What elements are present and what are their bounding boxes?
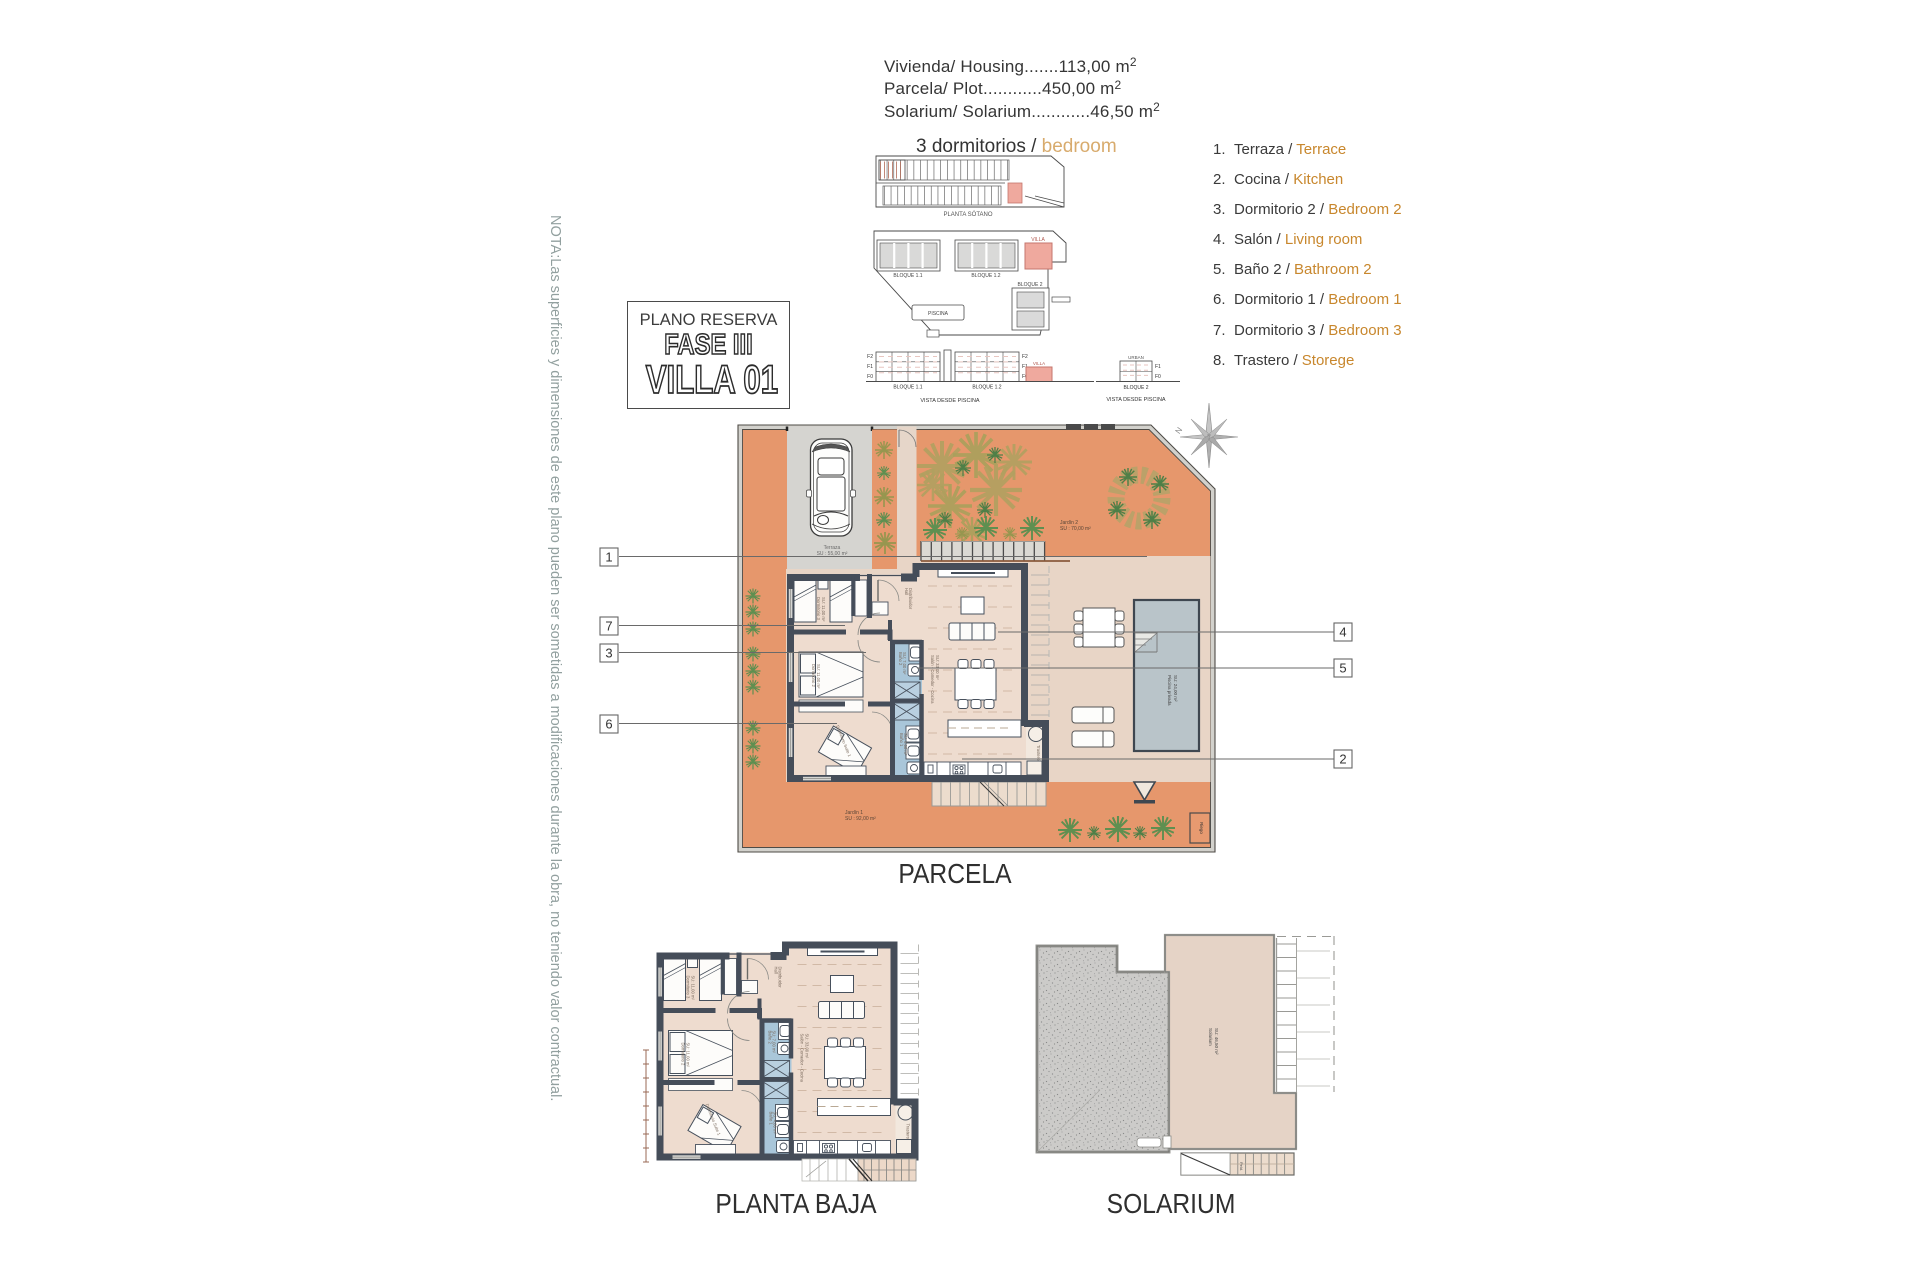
svg-text:PISCINA: PISCINA (928, 311, 949, 317)
svg-text:SU: 11,00 m²: SU: 11,00 m² (821, 597, 826, 622)
svg-text:Dormitorio 2: Dormitorio 2 (811, 664, 816, 687)
svg-text:BLOQUE 2: BLOQUE 2 (1017, 282, 1042, 288)
svg-text:5: 5 (1339, 661, 1346, 676)
svg-text:SU : 92,00 m²: SU : 92,00 m² (845, 816, 876, 822)
svg-text:SU: 24,00 m²: SU: 24,00 m² (1173, 675, 1178, 702)
svg-text:BLOQUE 1.2: BLOQUE 1.2 (971, 273, 1000, 279)
svg-text:Solarium: Solarium (1208, 1028, 1213, 1046)
svg-text:Piscina privada: Piscina privada (1167, 675, 1172, 706)
svg-text:SU: 7,00 m²: SU: 7,00 m² (902, 652, 907, 675)
svg-text:F0: F0 (1155, 374, 1161, 380)
svg-text:F1: F1 (867, 364, 873, 370)
svg-text:VILLA: VILLA (1031, 237, 1045, 243)
svg-text:SU : 70,00 m²: SU : 70,00 m² (1060, 526, 1091, 532)
svg-text:F2: F2 (867, 354, 873, 360)
svg-text:F0: F0 (867, 374, 873, 380)
svg-text:F1: F1 (1155, 364, 1161, 370)
svg-text:BLOQUE 1.1: BLOQUE 1.1 (893, 385, 922, 391)
svg-text:6: 6 (605, 717, 612, 732)
svg-text:3: 3 (605, 646, 612, 661)
svg-text:VILLA: VILLA (1033, 361, 1045, 366)
svg-text:BLOQUE 1.1: BLOQUE 1.1 (893, 273, 922, 279)
svg-text:URBAN: URBAN (1128, 355, 1144, 360)
svg-text:2: 2 (1339, 752, 1346, 767)
svg-text:Salón - Comedor - Cocina: Salón - Comedor - Cocina (930, 655, 935, 704)
svg-text:1: 1 (605, 550, 612, 565)
svg-text:VISTA DESDE PISCINA: VISTA DESDE PISCINA (1106, 397, 1166, 403)
svg-text:Riego: Riego (1199, 822, 1204, 834)
svg-text:VISTA DESDE PISCINA: VISTA DESDE PISCINA (920, 398, 980, 404)
svg-text:Distribuidor: Distribuidor (908, 588, 913, 610)
svg-text:Peld.: Peld. (1239, 1162, 1244, 1171)
svg-text:PLANTA SÓTANO: PLANTA SÓTANO (943, 211, 992, 218)
svg-text:4: 4 (1339, 625, 1346, 640)
svg-text:SU: 46,50 m²: SU: 46,50 m² (1214, 1028, 1219, 1055)
svg-text:BLOQUE 2: BLOQUE 2 (1123, 385, 1148, 391)
svg-text:SU: 11,00 m²: SU: 11,00 m² (816, 664, 821, 689)
svg-text:7: 7 (605, 619, 612, 634)
svg-text:N: N (1174, 425, 1185, 435)
svg-text:SU: 4,00 m²: SU: 4,00 m² (903, 733, 908, 756)
svg-text:BLOQUE 1.2: BLOQUE 1.2 (972, 385, 1001, 391)
svg-text:Dormitorio 3: Dormitorio 3 (816, 597, 821, 620)
svg-text:F2: F2 (1022, 354, 1028, 360)
